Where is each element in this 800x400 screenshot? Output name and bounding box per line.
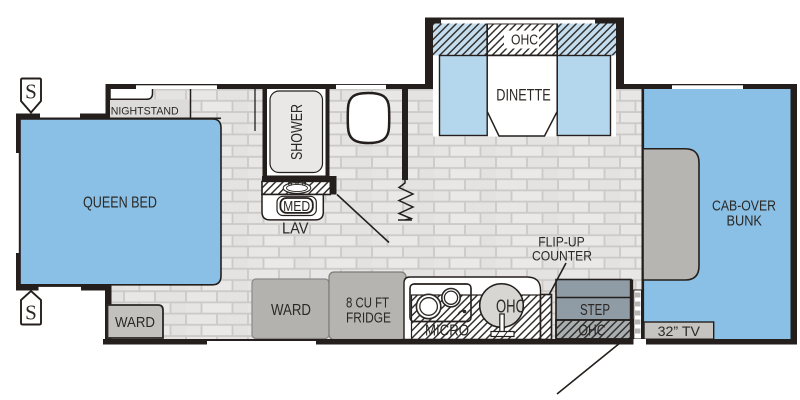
svg-text:MICRO: MICRO [425,322,469,339]
svg-text:OHC: OHC [496,296,525,316]
svg-text:STEP: STEP [580,302,610,319]
svg-text:S: S [25,301,37,325]
svg-text:BUNK: BUNK [726,213,762,229]
svg-text:S: S [25,80,37,104]
svg-text:COUNTER: COUNTER [532,248,592,263]
svg-text:DINETTE: DINETTE [496,86,551,104]
svg-text:CAB-OVER: CAB-OVER [712,198,776,214]
svg-text:SHOWER: SHOWER [289,104,306,160]
svg-text:MED: MED [283,198,310,215]
svg-text:32” TV: 32” TV [658,324,700,339]
svg-text:LAV: LAV [282,221,309,238]
svg-text:WARD: WARD [271,302,311,319]
svg-text:QUEEN BED: QUEEN BED [83,195,157,212]
svg-text:OHC: OHC [511,31,538,48]
svg-text:OHC: OHC [579,322,606,339]
svg-text:FRIDGE: FRIDGE [346,309,391,326]
svg-text:NIGHTSTAND: NIGHTSTAND [111,105,179,117]
svg-text:WARD: WARD [115,315,155,331]
